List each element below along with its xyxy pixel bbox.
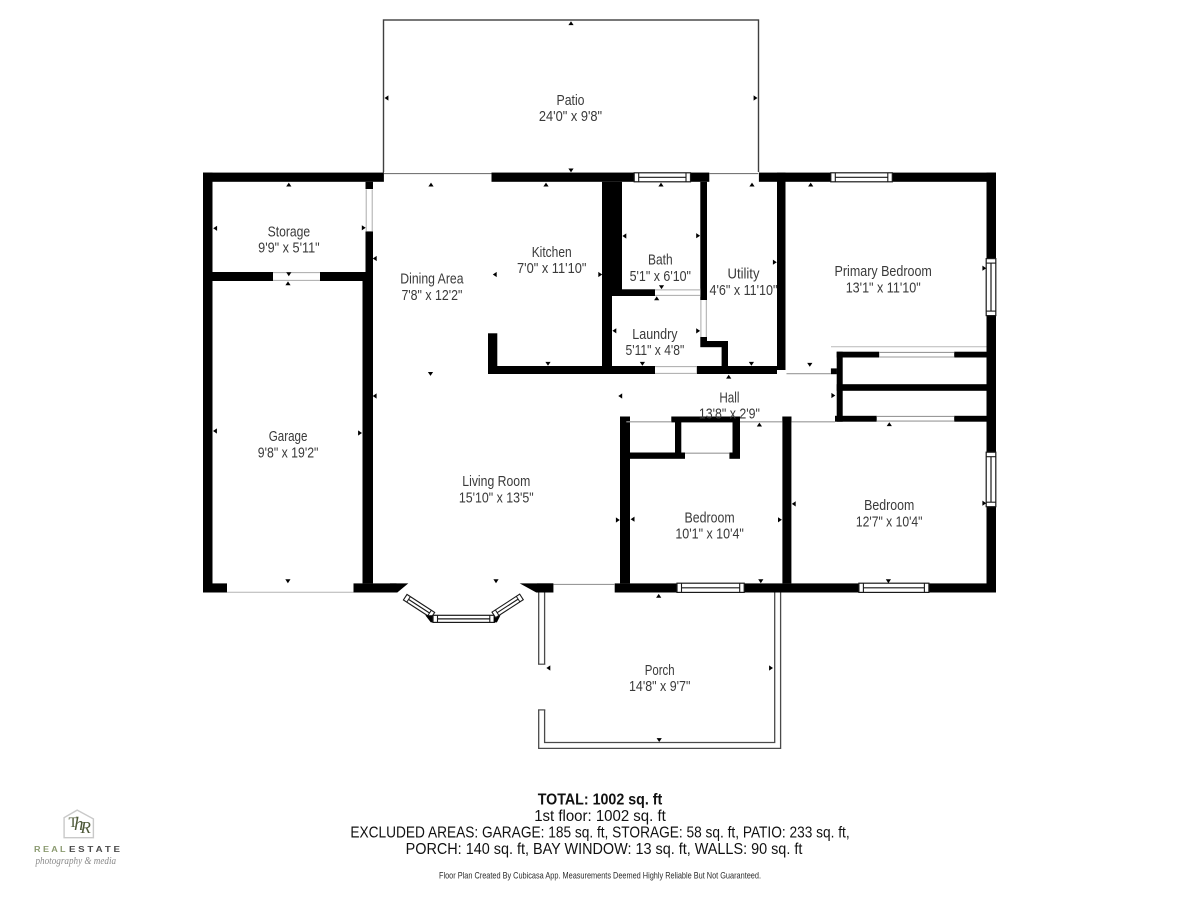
svg-text:Living Room: Living Room — [462, 474, 530, 490]
svg-text:Garage: Garage — [269, 429, 308, 445]
svg-text:14'8" x 9'7": 14'8" x 9'7" — [629, 679, 690, 695]
svg-text:PORCH: 140 sq. ft, BAY WINDOW:: PORCH: 140 sq. ft, BAY WINDOW: 13 sq. ft… — [406, 841, 803, 858]
svg-text:Laundry: Laundry — [632, 327, 678, 343]
svg-text:9'8" x 19'2": 9'8" x 19'2" — [258, 445, 319, 461]
svg-text:1st floor: 1002 sq. ft: 1st floor: 1002 sq. ft — [534, 808, 666, 825]
svg-text:Utility: Utility — [728, 267, 761, 283]
svg-text:R E A L: R E A L — [34, 845, 66, 854]
svg-text:TOTAL: 1002 sq. ft: TOTAL: 1002 sq. ft — [538, 792, 663, 809]
svg-text:photography & media: photography & media — [35, 855, 116, 867]
svg-text:Storage: Storage — [268, 224, 311, 240]
svg-text:5'1" x 6'10": 5'1" x 6'10" — [630, 269, 691, 285]
svg-text:10'1" x 10'4": 10'1" x 10'4" — [675, 527, 744, 543]
svg-text:15'10" x 13'5": 15'10" x 13'5" — [459, 490, 534, 506]
svg-text:Porch: Porch — [645, 663, 675, 679]
svg-text:Hall: Hall — [719, 390, 739, 406]
svg-text:Bedroom: Bedroom — [685, 510, 735, 526]
svg-text:12'7" x 10'4": 12'7" x 10'4" — [856, 514, 923, 530]
svg-text:Floor Plan Created By Cubicasa: Floor Plan Created By Cubicasa App. Meas… — [439, 869, 761, 880]
svg-text:7'8" x 12'2": 7'8" x 12'2" — [401, 288, 462, 304]
svg-text:EXCLUDED AREAS: GARAGE: 185 sq: EXCLUDED AREAS: GARAGE: 185 sq. ft, STOR… — [350, 824, 849, 841]
svg-text:Patio: Patio — [557, 93, 585, 109]
svg-text:7'0" x 11'10": 7'0" x 11'10" — [517, 261, 586, 277]
svg-text:Kitchen: Kitchen — [532, 245, 572, 261]
svg-text:Primary Bedroom: Primary Bedroom — [835, 264, 932, 280]
svg-text:E S T A T E: E S T A T E — [69, 845, 120, 854]
svg-text:Bedroom: Bedroom — [864, 498, 914, 514]
svg-text:Bath: Bath — [648, 253, 673, 269]
svg-text:9'9" x 5'11": 9'9" x 5'11" — [258, 241, 320, 257]
svg-text:R: R — [80, 818, 92, 837]
svg-text:4'6" x 11'10": 4'6" x 11'10" — [710, 283, 778, 299]
svg-text:13'8" x 2'9": 13'8" x 2'9" — [699, 407, 760, 423]
svg-text:24'0" x 9'8": 24'0" x 9'8" — [539, 109, 602, 125]
svg-text:13'1" x 11'10": 13'1" x 11'10" — [846, 280, 921, 296]
svg-text:Dining Area: Dining Area — [400, 272, 464, 288]
svg-text:5'11" x 4'8": 5'11" x 4'8" — [626, 343, 685, 359]
